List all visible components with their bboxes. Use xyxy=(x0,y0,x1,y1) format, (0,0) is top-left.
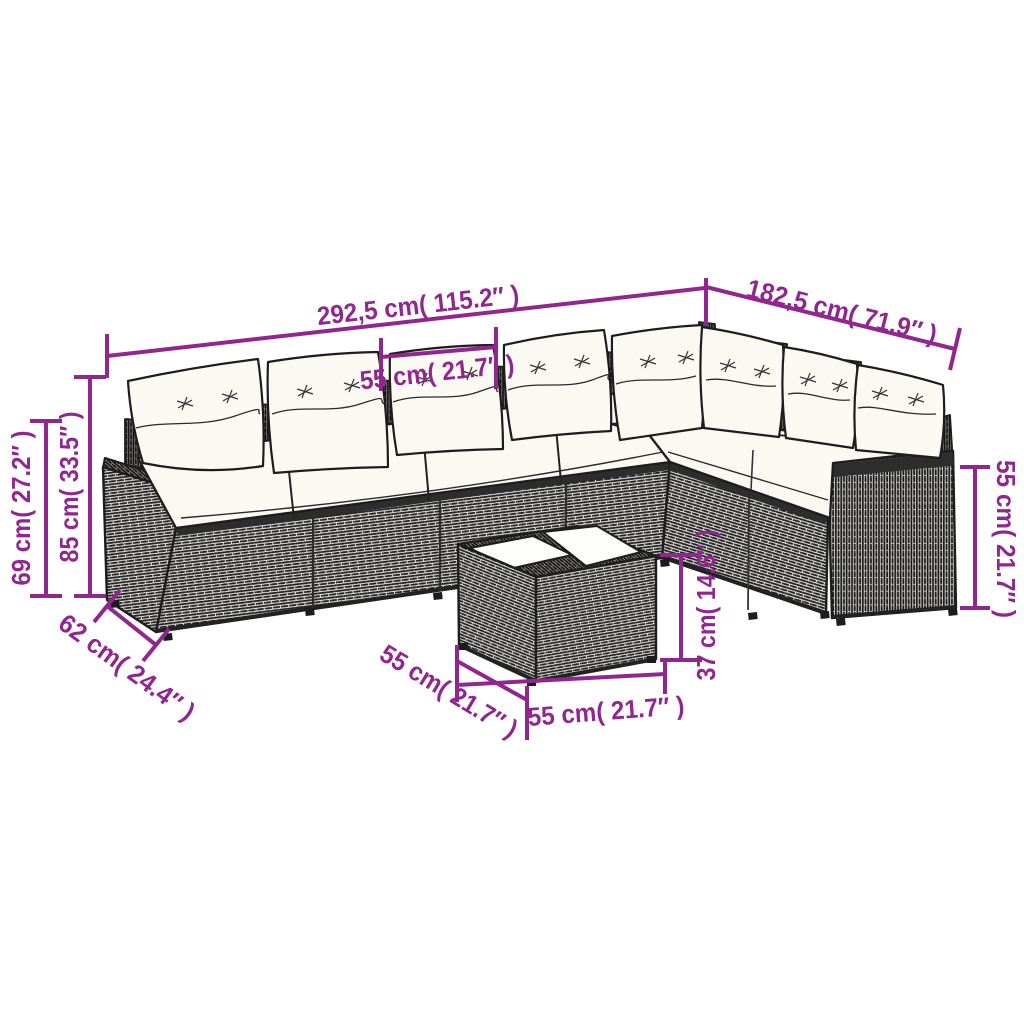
svg-text:85 cm( 33.5″ ): 85 cm( 33.5″ ) xyxy=(54,412,84,563)
svg-text:55 cm( 21.7″ ): 55 cm( 21.7″ ) xyxy=(991,460,1021,618)
svg-text:69 cm( 27.2″ ): 69 cm( 27.2″ ) xyxy=(6,431,36,586)
svg-text:37 cm( 14.6″ ): 37 cm( 14.6″ ) xyxy=(691,530,721,681)
